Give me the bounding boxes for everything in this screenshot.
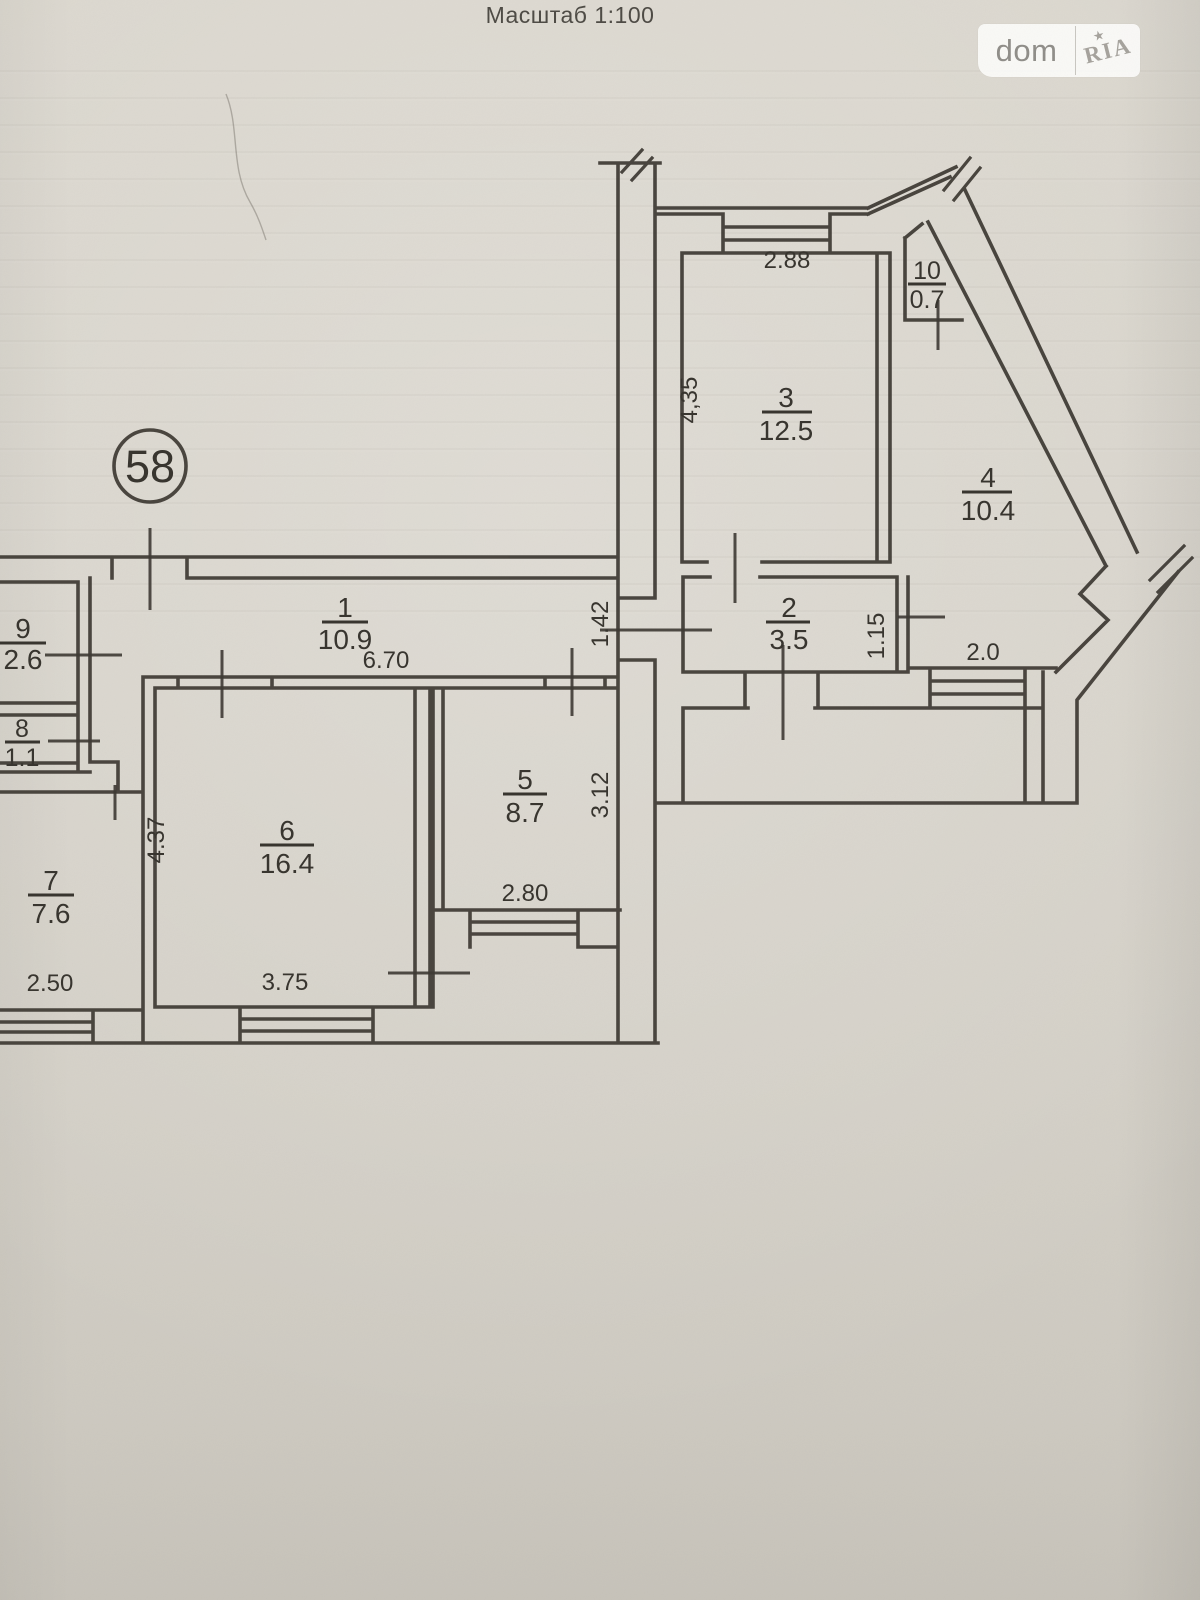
dim-1-15: 1.15 xyxy=(863,613,890,660)
room-5-area: 8.7 xyxy=(506,797,545,828)
room-10-number: 10 xyxy=(913,257,941,285)
room-8-number: 8 xyxy=(15,715,29,743)
dim-3-75: 3.75 xyxy=(262,969,309,996)
dim-2-80: 2.80 xyxy=(502,880,549,907)
dim-3-12: 3.12 xyxy=(587,772,614,819)
dim-2-0: 2.0 xyxy=(966,639,999,666)
dim-4-37: 4.37 xyxy=(143,817,170,864)
scanned-floor-plan-page: { "title": "Масштаб 1:100", "watermark":… xyxy=(0,0,1200,1600)
room-2-area: 3.5 xyxy=(770,624,809,655)
room-6-area: 16.4 xyxy=(260,848,315,879)
room-9-area: 2.6 xyxy=(4,644,43,675)
floor-plan-drawing: 58 1 10.9 2 3.5 3 12.5 4 10.4 5 8.7 xyxy=(0,0,1200,1600)
dim-2-50: 2.50 xyxy=(27,970,74,997)
room-4-number: 4 xyxy=(980,462,996,493)
dim-2-88: 2.88 xyxy=(764,247,811,274)
room-1-number: 1 xyxy=(337,592,353,623)
room-7-area: 7.6 xyxy=(32,898,71,929)
room-9-number: 9 xyxy=(15,613,31,644)
room-3-area: 12.5 xyxy=(759,415,814,446)
room-10-label: 10 0.7 xyxy=(908,257,946,314)
room-8-area: 1.1 xyxy=(5,744,40,772)
dim-4-35: 4,35 xyxy=(676,377,703,424)
room-5-number: 5 xyxy=(517,764,533,795)
dim-1-42: 1.42 xyxy=(587,601,614,648)
room-4-area: 10.4 xyxy=(961,495,1016,526)
room-2-number: 2 xyxy=(781,592,797,623)
room-10-area: 0.7 xyxy=(910,286,945,314)
room-3-number: 3 xyxy=(778,382,794,413)
apartment-number: 58 xyxy=(125,441,175,492)
dim-6-70: 6.70 xyxy=(363,647,410,674)
room-6-number: 6 xyxy=(279,815,295,846)
room-7-number: 7 xyxy=(43,865,59,896)
